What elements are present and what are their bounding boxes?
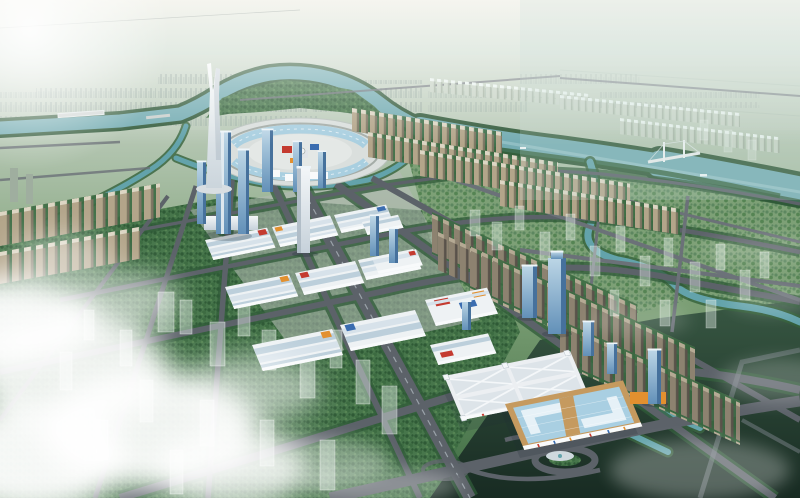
ghost-building (382, 386, 397, 434)
ghost-building (690, 262, 700, 292)
ghost-building (356, 360, 370, 404)
ghost-building (566, 214, 575, 240)
glass-tower (607, 343, 618, 375)
fountain (558, 454, 562, 458)
render-canvas (0, 0, 800, 498)
aerial-city-render (0, 0, 800, 498)
ghost-building (470, 210, 480, 236)
glass-tower (583, 321, 595, 357)
ghost-building (492, 222, 502, 250)
glass-tower (318, 151, 327, 189)
cool-haze-east (520, 0, 800, 200)
glass-tower (389, 228, 399, 264)
ghost-building (590, 246, 600, 276)
ghost-building (706, 300, 716, 328)
ghost-building (540, 232, 550, 260)
ghost-building (616, 226, 625, 252)
ghost-building (180, 300, 192, 334)
ghost-building (515, 206, 524, 230)
glass-tower (370, 215, 380, 257)
ghost-building (640, 256, 650, 286)
ghost-building (664, 238, 673, 266)
glass-tower (238, 149, 250, 235)
glass-tower (462, 301, 472, 331)
